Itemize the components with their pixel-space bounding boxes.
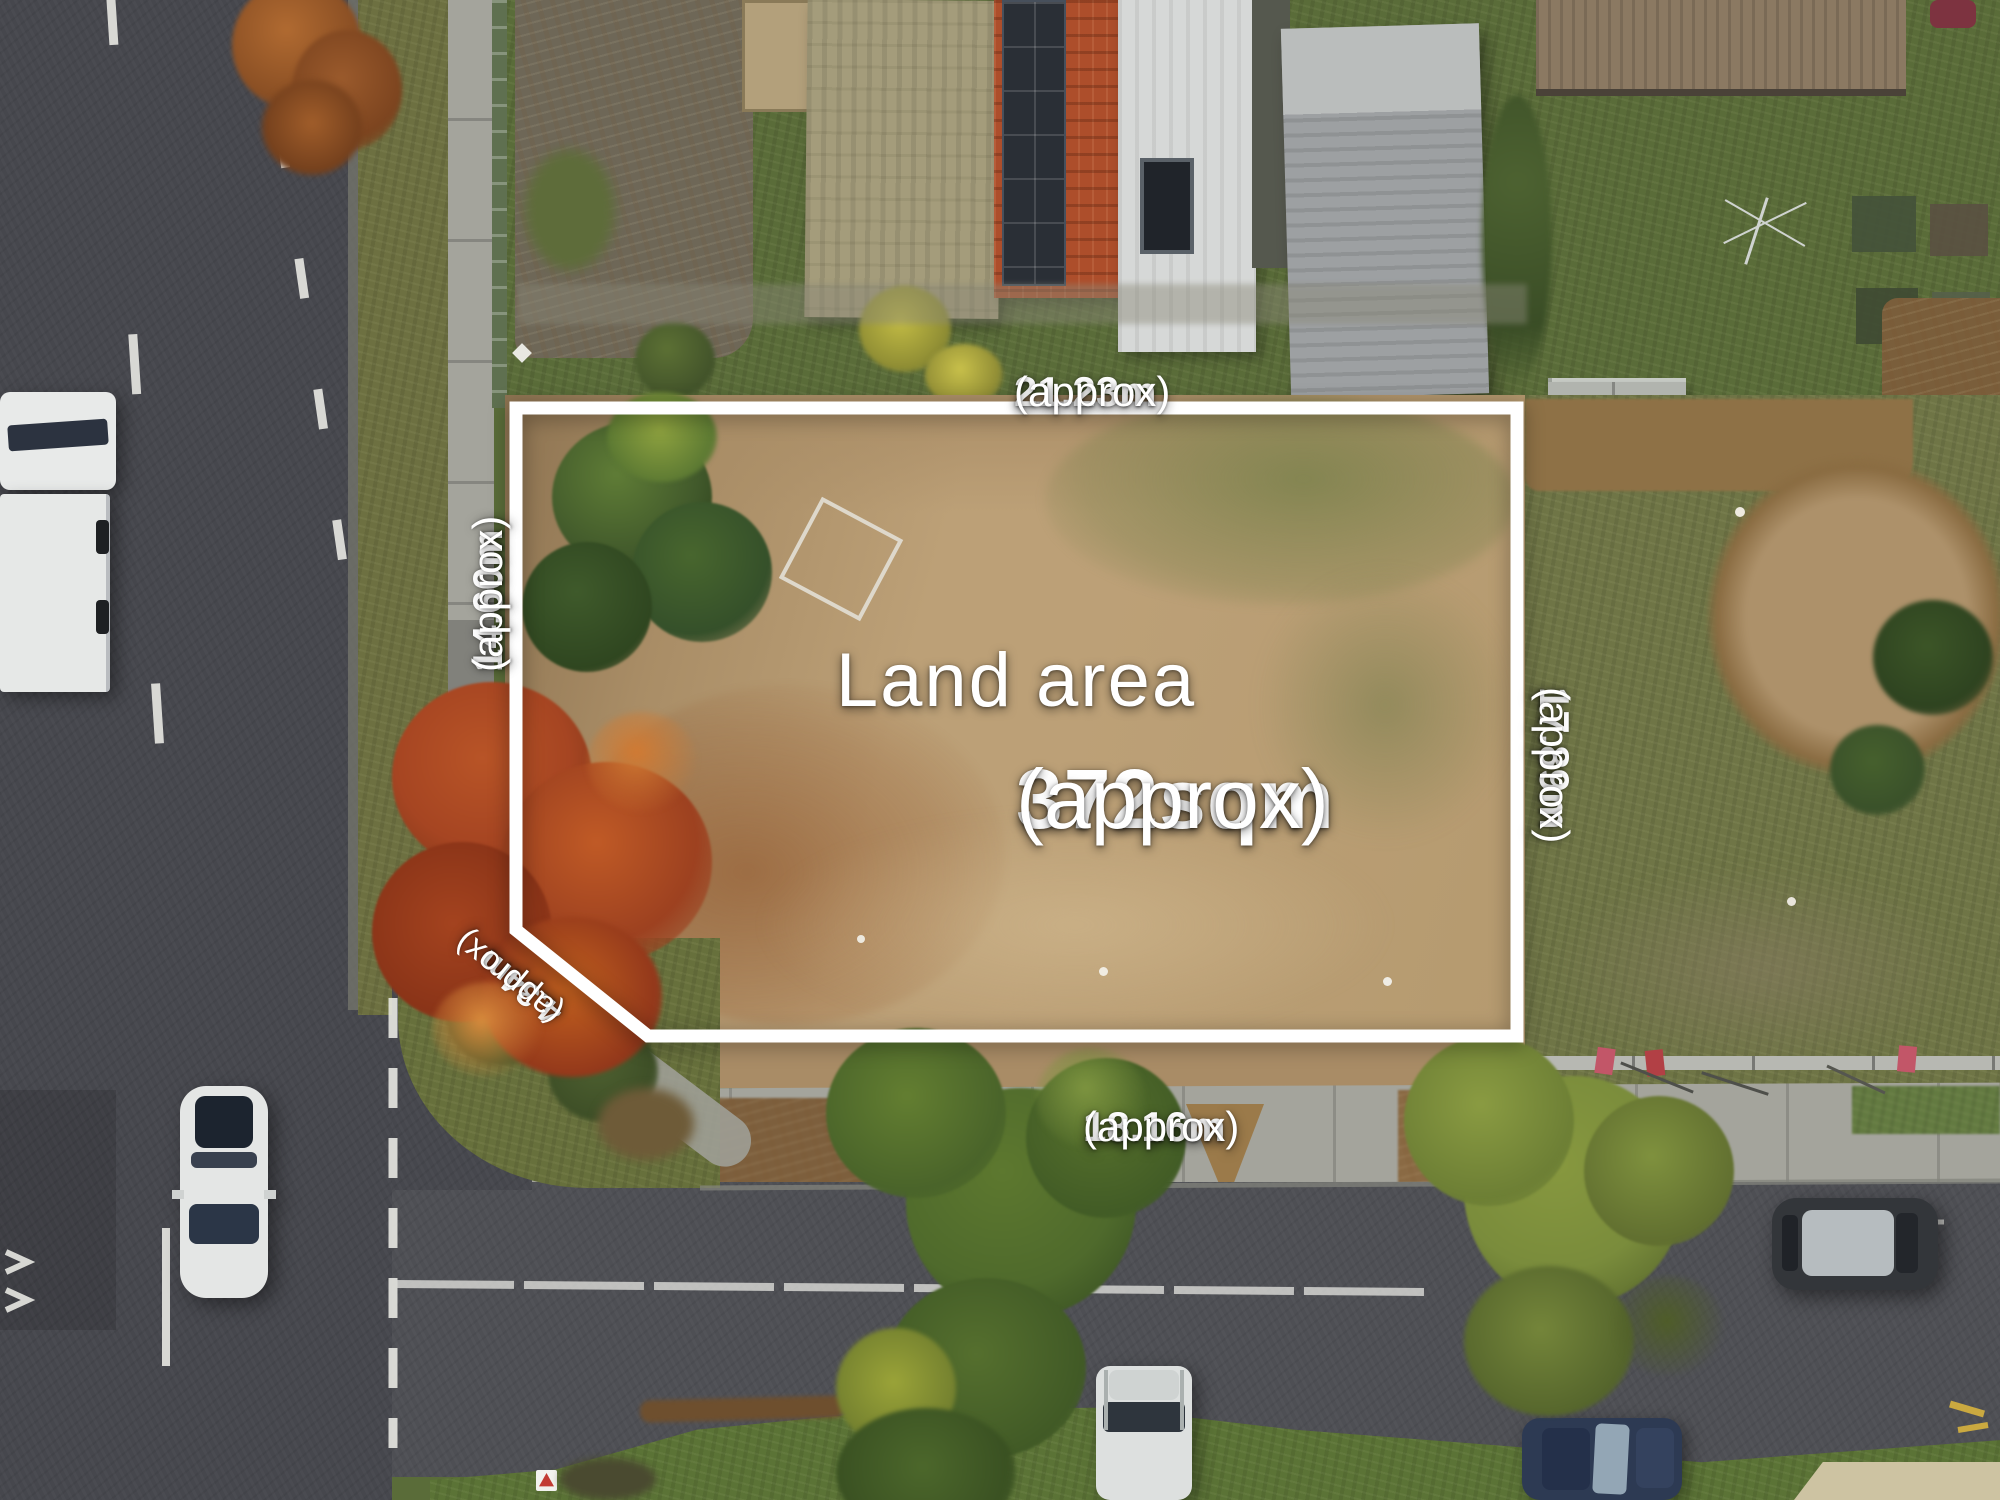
dimension-suffix: (approx) <box>1014 371 1170 413</box>
dimension-suffix: (approx) <box>467 516 509 672</box>
aerial-photo-canvas: 21.23m (approx) 14.60m (approx) 17.89m (… <box>0 0 2000 1500</box>
boundary-overlay <box>0 0 2000 1500</box>
land-area-suffix: (approx) <box>1016 757 1329 841</box>
land-area-title: Land area <box>836 643 1196 719</box>
dimension-suffix: (approx) <box>1083 1106 1239 1148</box>
dimension-suffix: (approx) <box>1533 687 1575 843</box>
